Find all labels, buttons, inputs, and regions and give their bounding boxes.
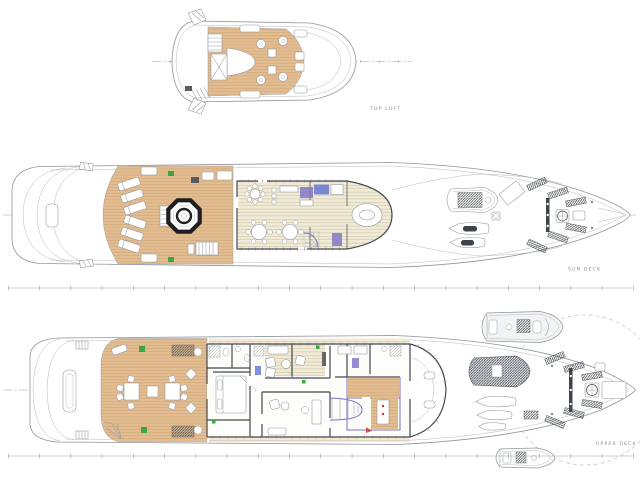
capstan xyxy=(492,212,500,220)
pantry-counter xyxy=(331,185,343,195)
plant xyxy=(212,420,216,424)
windlass xyxy=(556,210,569,223)
vip-cabin xyxy=(216,376,246,413)
planter xyxy=(168,171,174,176)
deck-box xyxy=(595,363,605,371)
plant xyxy=(316,346,320,350)
planter xyxy=(168,257,174,262)
skylounge xyxy=(236,180,392,250)
upper-deck-label: UPPER DECK xyxy=(596,441,637,447)
tender-stowed xyxy=(469,356,530,387)
aft-hatch xyxy=(185,86,192,91)
tv-cabinet xyxy=(322,352,326,366)
deck-sun: SUN DECK xyxy=(3,162,637,288)
game-table xyxy=(245,184,265,204)
helm-seat xyxy=(424,372,435,379)
rescue-boat-crane-position-bottom xyxy=(496,448,555,468)
observation-settee xyxy=(352,204,382,227)
dumbwaiter xyxy=(332,233,342,246)
top-loft-label: TOP LOFT xyxy=(369,106,401,112)
bow-locker xyxy=(573,211,585,220)
deck-locker xyxy=(141,167,157,175)
anchor-chain xyxy=(569,368,573,412)
yacht-deck-plan: TOP LOFT xyxy=(0,0,640,480)
drawing-sheet: TOP LOFT xyxy=(0,0,640,480)
anchor-chain xyxy=(546,198,550,232)
cabinet xyxy=(255,366,261,375)
bow-seat xyxy=(602,382,626,399)
deck-box xyxy=(202,172,214,180)
helm-seat xyxy=(424,401,435,408)
plant xyxy=(302,380,306,384)
tender-crane-position-top xyxy=(482,312,563,343)
deck-upper: UPPER DECK xyxy=(3,312,640,469)
pantry-unit xyxy=(314,185,329,195)
deck-top-loft: TOP LOFT xyxy=(152,9,412,114)
planter xyxy=(139,346,145,352)
deck-stairs xyxy=(188,242,218,255)
planter xyxy=(141,427,147,433)
deck-locker xyxy=(141,254,157,262)
deck-box xyxy=(217,171,232,180)
sun-deck-label: SUN DECK xyxy=(568,267,601,273)
deck-hatch xyxy=(191,177,199,183)
tender-topview xyxy=(447,188,498,213)
upper-interior xyxy=(207,339,410,443)
windlass xyxy=(585,383,599,397)
